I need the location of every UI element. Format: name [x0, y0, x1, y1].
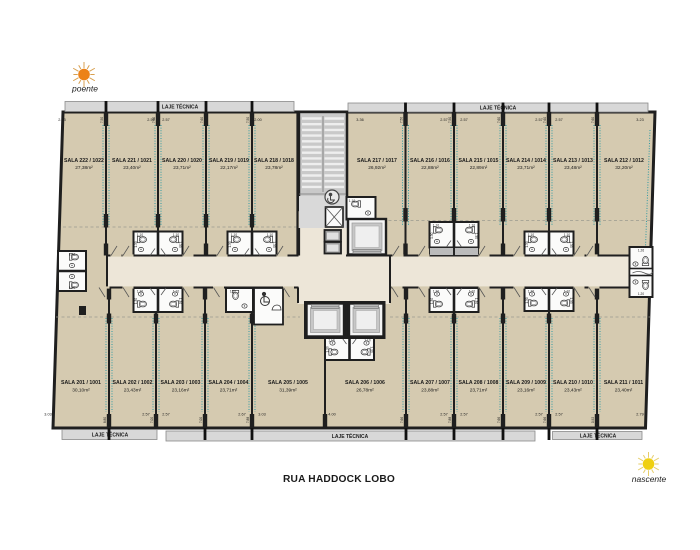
svg-text:SALA 207 / 1007: SALA 207 / 1007: [410, 380, 450, 386]
svg-text:2.57: 2.57: [440, 118, 447, 122]
svg-text:1.20: 1.20: [638, 292, 644, 296]
svg-text:1.30: 1.30: [326, 346, 330, 352]
svg-text:SALA 222 / 1022: SALA 222 / 1022: [64, 158, 104, 164]
svg-text:7.60: 7.60: [200, 117, 204, 123]
svg-text:1.10: 1.10: [349, 199, 355, 203]
svg-text:1.10: 1.10: [267, 233, 273, 237]
svg-text:3.03: 3.03: [258, 413, 265, 417]
svg-text:1.26: 1.26: [638, 249, 644, 253]
svg-text:22,17m²: 22,17m²: [220, 165, 238, 171]
svg-text:1.10: 1.10: [137, 233, 143, 237]
svg-text:23,71m²: 23,71m²: [220, 388, 238, 394]
svg-text:7.66: 7.66: [543, 417, 547, 423]
svg-text:23,71m²: 23,71m²: [517, 165, 535, 171]
svg-text:SALA 212 / 1012: SALA 212 / 1012: [604, 158, 644, 164]
svg-text:23,71m²: 23,71m²: [470, 388, 488, 394]
svg-text:nascente: nascente: [632, 474, 667, 484]
svg-text:SALA 214 / 1014: SALA 214 / 1014: [506, 158, 546, 164]
svg-text:1.10: 1.10: [364, 339, 370, 343]
svg-text:2.57: 2.57: [460, 413, 467, 417]
svg-text:SALA 205 / 1005: SALA 205 / 1005: [268, 380, 308, 386]
svg-text:1.30: 1.30: [228, 241, 232, 247]
svg-text:1.30: 1.30: [525, 297, 529, 303]
svg-text:7.60: 7.60: [152, 117, 156, 123]
svg-text:1.30: 1.30: [474, 233, 478, 239]
svg-text:23,16m²: 23,16m²: [517, 388, 535, 394]
svg-text:1.30: 1.30: [569, 241, 573, 247]
svg-text:7.50: 7.50: [246, 117, 250, 123]
svg-text:SALA 218 / 1018: SALA 218 / 1018: [254, 158, 294, 164]
svg-text:2.57: 2.57: [535, 118, 542, 122]
svg-text:1.10: 1.10: [528, 290, 534, 294]
svg-text:1.30: 1.30: [430, 298, 434, 304]
svg-text:2.57: 2.57: [162, 118, 169, 122]
svg-text:7.60: 7.60: [497, 117, 501, 123]
svg-text:2.00: 2.00: [254, 118, 261, 122]
svg-text:26,92m²: 26,92m²: [368, 165, 386, 171]
svg-text:7.88: 7.88: [246, 417, 250, 423]
svg-text:SALA 206 / 1006: SALA 206 / 1006: [345, 380, 385, 386]
svg-text:1.30: 1.30: [134, 241, 138, 247]
svg-text:7.66: 7.66: [400, 417, 404, 423]
svg-text:RUA HADDOCK LOBO: RUA HADDOCK LOBO: [283, 474, 395, 485]
svg-text:7.00: 7.00: [150, 417, 154, 423]
svg-text:7.60: 7.60: [591, 117, 595, 123]
svg-text:30,10m²: 30,10m²: [72, 388, 90, 394]
svg-text:23,78m²: 23,78m²: [265, 165, 283, 171]
svg-text:1.30: 1.30: [430, 232, 434, 238]
svg-text:SALA 209 / 1009: SALA 209 / 1009: [506, 380, 546, 386]
svg-text:7.50: 7.50: [100, 117, 104, 123]
svg-text:LAJE TÉCNICA: LAJE TÉCNICA: [332, 432, 369, 440]
svg-text:23,16m²: 23,16m²: [172, 388, 190, 394]
svg-text:2.57: 2.57: [440, 413, 447, 417]
svg-text:SALA 220 / 1020: SALA 220 / 1020: [162, 158, 202, 164]
svg-text:1.10: 1.10: [328, 339, 334, 343]
svg-text:22,88m²: 22,88m²: [421, 165, 439, 171]
svg-text:1.10: 1.10: [231, 233, 237, 237]
svg-text:1.10: 1.10: [230, 290, 236, 294]
svg-text:2.57: 2.57: [142, 413, 149, 417]
svg-text:LAJE TÉCNICA: LAJE TÉCNICA: [480, 104, 517, 112]
svg-text:SALA 217 / 1017: SALA 217 / 1017: [357, 158, 397, 164]
svg-text:23,40m²: 23,40m²: [615, 388, 633, 394]
svg-text:1.10: 1.10: [433, 224, 439, 228]
svg-text:1.30: 1.30: [569, 297, 573, 303]
svg-text:2.57: 2.57: [555, 118, 562, 122]
svg-text:SALA 203 / 1003: SALA 203 / 1003: [161, 380, 201, 386]
svg-text:1.10: 1.10: [528, 233, 534, 237]
svg-text:SALA 202 / 1002: SALA 202 / 1002: [113, 380, 153, 386]
svg-text:2.57: 2.57: [460, 118, 467, 122]
svg-text:2.67: 2.67: [238, 413, 245, 417]
svg-text:LAJE TÉCNICA: LAJE TÉCNICA: [162, 103, 199, 111]
svg-text:1.30: 1.30: [370, 346, 374, 352]
svg-text:3.36: 3.36: [356, 118, 363, 122]
svg-text:1.10: 1.10: [137, 290, 143, 294]
svg-text:32,20m²: 32,20m²: [615, 165, 633, 171]
svg-text:7.60: 7.60: [543, 117, 547, 123]
svg-text:23,71m²: 23,71m²: [173, 165, 191, 171]
svg-text:27,38m²: 27,38m²: [75, 165, 93, 171]
svg-text:1.10: 1.10: [173, 233, 179, 237]
svg-text:31,39m²: 31,39m²: [279, 388, 297, 394]
svg-text:2.57: 2.57: [535, 413, 542, 417]
svg-text:2.57: 2.57: [555, 413, 562, 417]
svg-text:7.00: 7.00: [199, 417, 203, 423]
svg-text:8.80: 8.80: [103, 417, 107, 423]
svg-text:0.92: 0.92: [591, 417, 595, 423]
svg-text:1.20: 1.20: [69, 286, 75, 290]
svg-text:23,40m²: 23,40m²: [123, 165, 141, 171]
svg-text:2.93: 2.93: [58, 118, 65, 122]
svg-text:1.26: 1.26: [69, 253, 75, 257]
svg-text:2.57: 2.57: [162, 413, 169, 417]
svg-text:SALA 213 / 1013: SALA 213 / 1013: [553, 158, 593, 164]
svg-text:SALA 208 / 1008: SALA 208 / 1008: [459, 380, 499, 386]
svg-text:SALA 204 / 1004: SALA 204 / 1004: [209, 380, 249, 386]
svg-text:SALA 215 / 1015: SALA 215 / 1015: [459, 158, 499, 164]
svg-text:1.10: 1.10: [469, 224, 475, 228]
svg-text:23,48m²: 23,48m²: [564, 165, 582, 171]
svg-text:1.30: 1.30: [178, 241, 182, 247]
svg-text:1.30: 1.30: [525, 241, 529, 247]
svg-text:SALA 211 / 1011: SALA 211 / 1011: [604, 380, 643, 386]
svg-text:1.10: 1.10: [433, 290, 439, 294]
svg-text:1.30: 1.30: [178, 298, 182, 304]
svg-text:1.10: 1.10: [564, 233, 570, 237]
svg-text:1.30: 1.30: [134, 298, 138, 304]
svg-text:3.23: 3.23: [636, 118, 643, 122]
svg-text:7.50: 7.50: [400, 117, 404, 123]
svg-text:22,89m²: 22,89m²: [470, 165, 488, 171]
svg-text:2.79: 2.79: [636, 413, 643, 417]
svg-text:1.10: 1.10: [564, 290, 570, 294]
svg-text:1.10: 1.10: [469, 290, 475, 294]
svg-text:poente: poente: [71, 84, 98, 94]
svg-text:1.30: 1.30: [474, 298, 478, 304]
svg-text:SALA 210 / 1010: SALA 210 / 1010: [553, 380, 593, 386]
svg-text:7.88: 7.88: [448, 417, 452, 423]
svg-text:23,43m²: 23,43m²: [124, 388, 142, 394]
svg-text:SALA 216 / 1016: SALA 216 / 1016: [410, 158, 450, 164]
svg-text:23,88m²: 23,88m²: [421, 388, 439, 394]
svg-text:23,43m²: 23,43m²: [564, 388, 582, 394]
svg-text:SALA 201 / 1001: SALA 201 / 1001: [61, 380, 101, 386]
svg-text:1.30: 1.30: [272, 241, 276, 247]
svg-text:SALA 221 / 1021: SALA 221 / 1021: [112, 158, 152, 164]
svg-text:1.10: 1.10: [173, 290, 179, 294]
svg-text:26,78m²: 26,78m²: [356, 388, 374, 394]
svg-text:SALA 219 / 1019: SALA 219 / 1019: [209, 158, 249, 164]
svg-text:3.03: 3.03: [44, 413, 51, 417]
svg-text:7.66: 7.66: [497, 417, 501, 423]
svg-text:4.00: 4.00: [328, 413, 335, 417]
svg-text:7.50: 7.50: [448, 117, 452, 123]
